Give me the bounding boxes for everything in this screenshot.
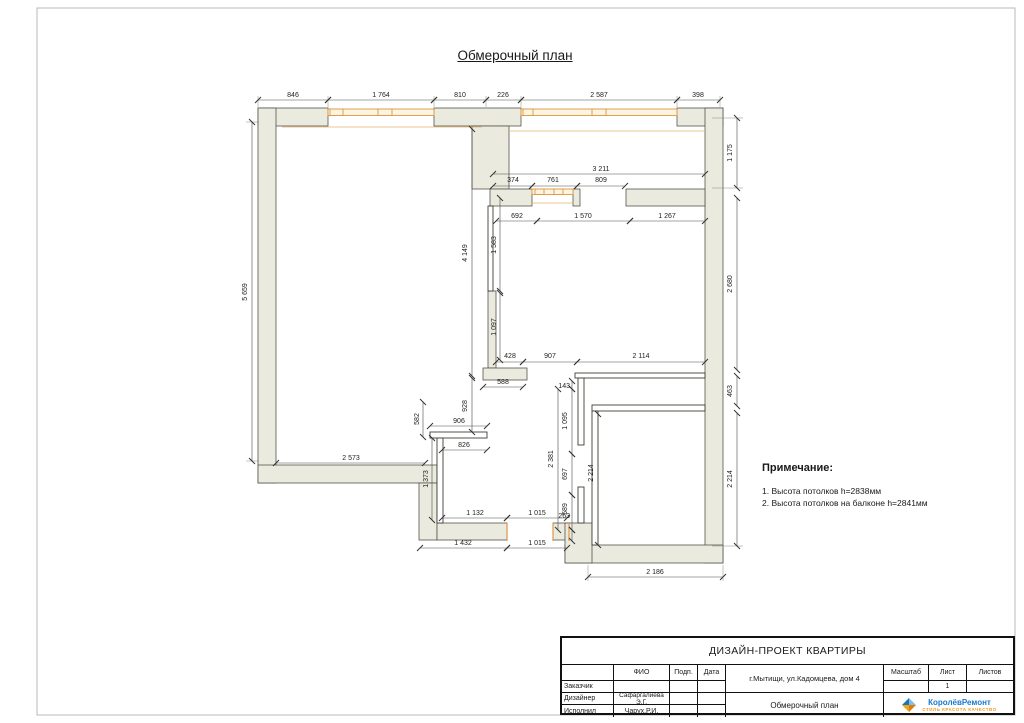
dim-label: 4 149	[462, 244, 469, 262]
tb-name	[614, 681, 670, 693]
tb-header-date: Дата	[698, 665, 726, 681]
tb-scale-value	[884, 681, 929, 693]
dim-label: 588	[497, 379, 509, 386]
title-block: ДИЗАЙН-ПРОЕКТ КВАРТИРЫ ФИО Подп. Дата г.…	[560, 636, 1015, 715]
dim-label: 1 097	[491, 318, 498, 336]
tb-role: Дизайнер	[562, 693, 614, 705]
logo-tagline: СТИЛЬ КРАСОТА КАЧЕСТВО	[922, 707, 996, 713]
tb-sheet-number: 1	[929, 681, 967, 693]
dim-label: 697	[562, 468, 569, 480]
tb-cell	[698, 681, 726, 693]
dim-label: 1 267	[658, 213, 676, 220]
dim-label: 2 573	[342, 455, 360, 462]
tb-header-fio: ФИО	[614, 665, 670, 681]
tb-role: Исполнил	[562, 705, 614, 717]
dim-label: 1 764	[372, 92, 390, 99]
tb-cell	[670, 705, 698, 717]
tb-role: Заказчик	[562, 681, 614, 693]
dim-label: 582	[414, 413, 421, 425]
tb-header-sheet: Лист	[929, 665, 967, 681]
tb-cell	[698, 705, 726, 717]
dim-label: 906	[453, 418, 465, 425]
dim-label: 2 114	[633, 353, 650, 360]
dim-label: 810	[454, 92, 466, 99]
floor-plan: 846 1 764 810 226 2 587 398 3 211 374 76…	[0, 0, 1024, 723]
dim-label: 1 570	[574, 213, 592, 220]
dim-label: 2 214	[727, 470, 734, 488]
tb-cell	[670, 693, 698, 705]
partition-walls	[430, 206, 705, 545]
dim-label: 907	[544, 353, 556, 360]
dim-label: 2 680	[727, 275, 734, 293]
logo-icon	[900, 696, 918, 714]
project-title: ДИЗАЙН-ПРОЕКТ КВАРТИРЫ	[562, 638, 1013, 665]
notes-block: Примечание: 1. Высота потолков h=2838мм …	[762, 462, 1002, 509]
dim-label: 428	[504, 353, 516, 360]
dim-label: 1 175	[727, 144, 734, 162]
dim-label: 1 015	[528, 510, 546, 517]
dim-label: 463	[727, 385, 734, 397]
dim-label: 2 214	[588, 464, 595, 482]
dim-label: 226	[497, 92, 509, 99]
dim-label: 1 132	[466, 510, 484, 517]
dim-label: 809	[595, 177, 607, 184]
dim-label: 692	[511, 213, 523, 220]
note-item: 1. Высота потолков h=2838мм	[762, 485, 1002, 497]
dim-label: 1 373	[423, 470, 430, 488]
tb-cell	[670, 681, 698, 693]
dim-label: 2 587	[590, 92, 608, 99]
tb-header-scale: Масштаб	[884, 665, 929, 681]
tb-address: г.Мытищи, ул.Кадомцева, дом 4	[726, 665, 884, 693]
tb-name: Чарух.Р.И.	[614, 705, 670, 717]
dim-label: 1 583	[491, 236, 498, 254]
tb-doc-title: Обмерочный план	[726, 693, 884, 717]
tb-name: Сафаргалиева Э.Г.	[614, 693, 670, 705]
tb-header-sheets: Листов	[967, 665, 1013, 681]
dim-label: 3 211	[593, 166, 610, 173]
dim-label: 1 015	[528, 540, 546, 547]
dim-label: 374	[507, 177, 519, 184]
dim-label: 2 381	[548, 450, 555, 468]
tb-cell	[967, 681, 1013, 693]
dim-label: 761	[547, 177, 559, 184]
dim-label: 2 186	[646, 569, 664, 576]
notes-heading: Примечание:	[762, 462, 1002, 474]
note-item: 2. Высота потолков на балконе h=2841мм	[762, 497, 1002, 509]
dim-label: 589	[562, 503, 569, 515]
tb-header-sign: Подп.	[670, 665, 698, 681]
company-logo: КоролёвРемонт СТИЛЬ КРАСОТА КАЧЕСТВО	[884, 693, 1013, 717]
dim-label: 5 659	[242, 283, 249, 301]
dim-label: 1 432	[454, 540, 472, 547]
drawing-sheet: Обмерочный план	[0, 0, 1024, 723]
tb-cell	[698, 693, 726, 705]
dim-label: 398	[692, 92, 704, 99]
dim-label: 143	[558, 383, 570, 390]
dim-label: 846	[287, 92, 299, 99]
dim-label: 928	[462, 400, 469, 412]
logo-name: КоролёвРемонт	[922, 698, 996, 707]
tb-cell	[562, 665, 614, 681]
dim-label: 1 095	[562, 412, 569, 430]
dim-label: 826	[458, 442, 470, 449]
